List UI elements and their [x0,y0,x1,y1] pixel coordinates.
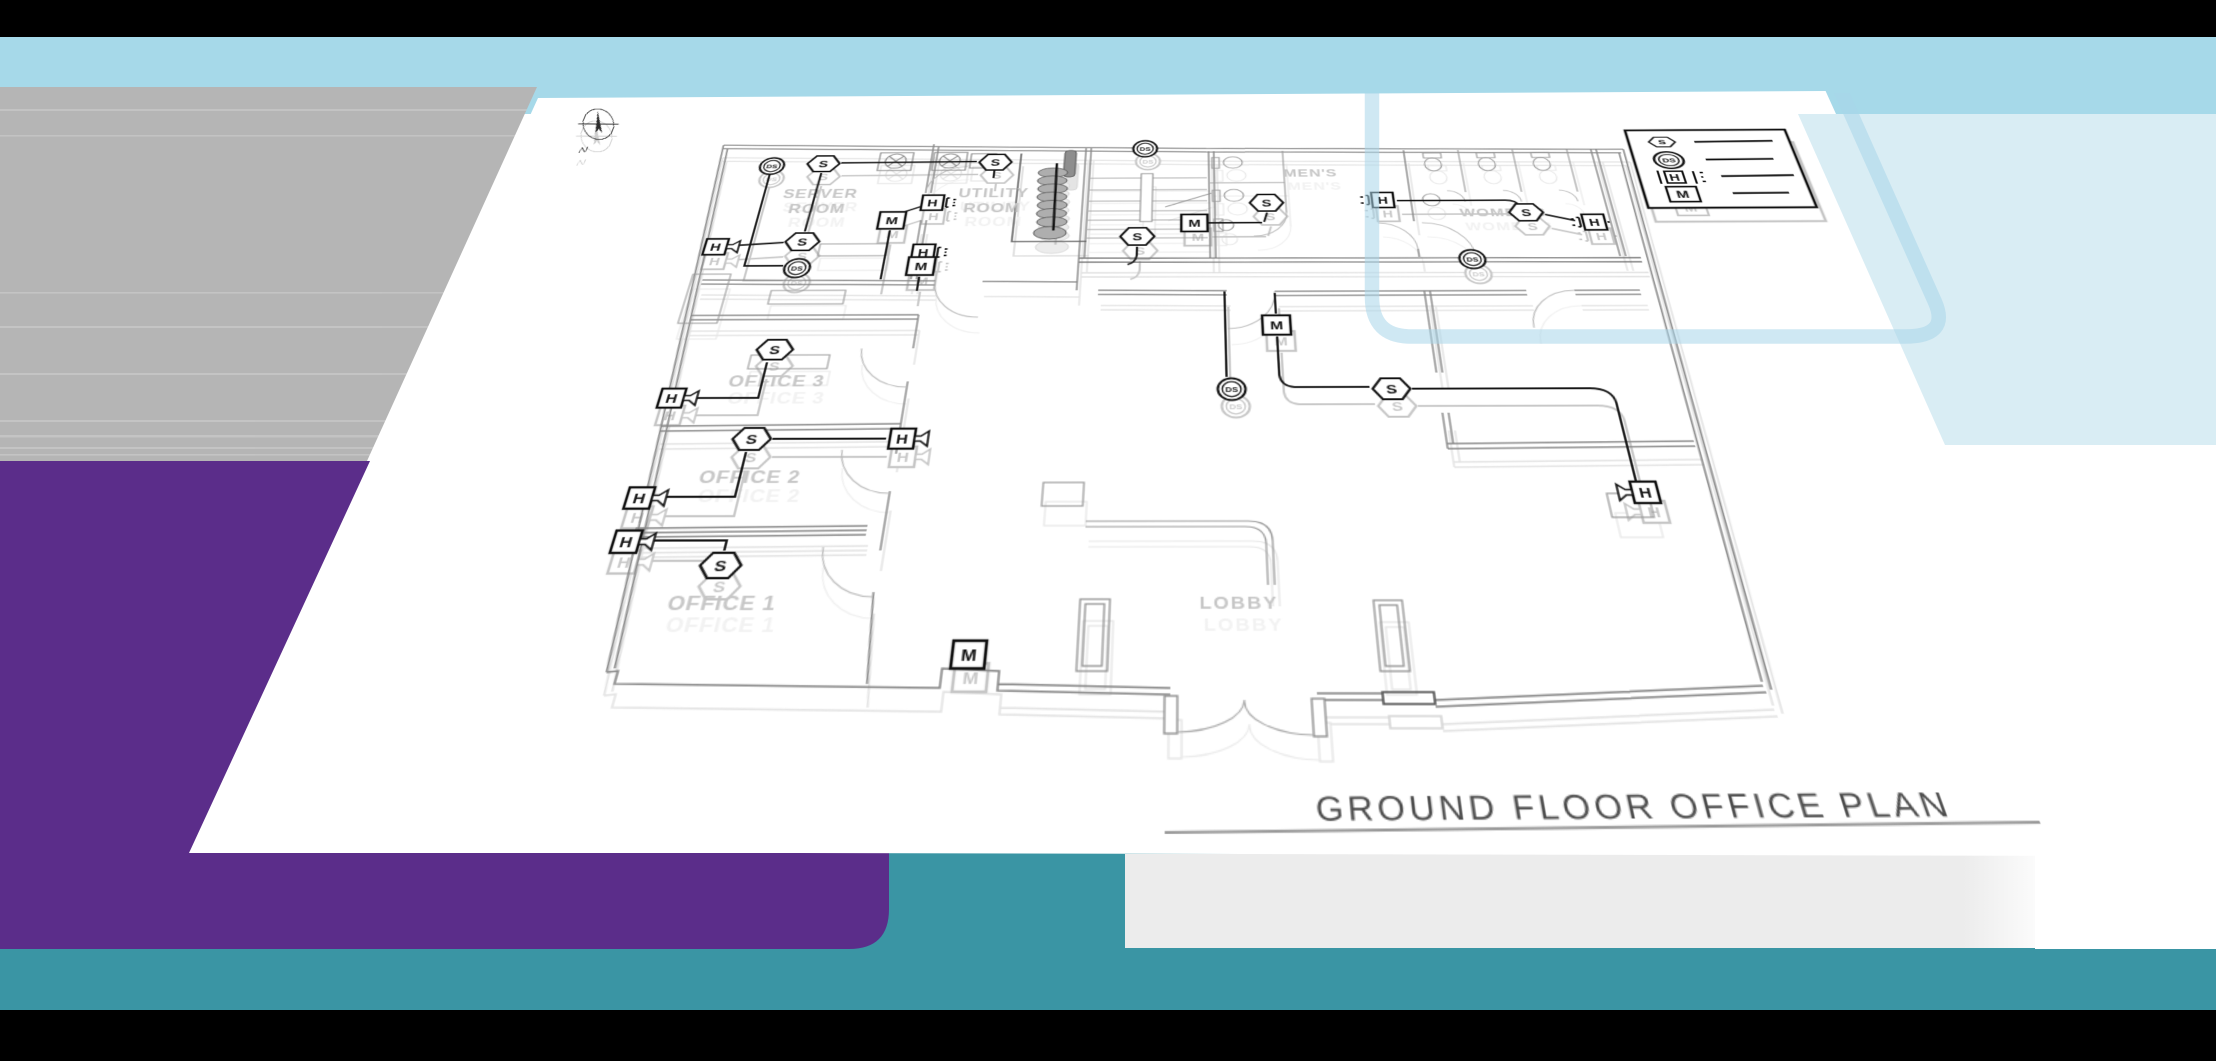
svg-text:GROUND FLOOR OFFICE PLAN: GROUND FLOOR OFFICE PLAN [1315,787,1958,829]
svg-text:M: M [960,645,978,665]
svg-text:LOBBY: LOBBY [1199,593,1279,613]
svg-text:OFFICE 1: OFFICE 1 [665,594,779,615]
